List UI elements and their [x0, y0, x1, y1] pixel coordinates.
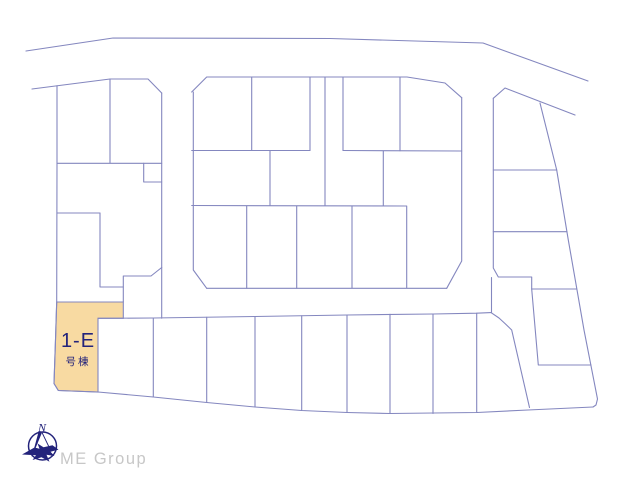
parcel-boundary-line [540, 103, 598, 407]
parcel-boundary-line [447, 98, 462, 289]
parcel-boundary-line [491, 313, 530, 408]
parcel-boundary-line [493, 88, 575, 115]
site-plan-map [0, 0, 640, 480]
parcel-boundary-line [343, 151, 462, 152]
lot-number-suffix: 号棟 [50, 354, 106, 369]
parcel-boundary-line [192, 77, 462, 98]
parcel-boundary-line [192, 206, 407, 288]
parcel-boundary-line [98, 313, 491, 319]
lot-number: 1-E [50, 331, 106, 351]
compass-needle-line [42, 433, 50, 449]
parcel-boundary-line [54, 384, 593, 414]
bird-logo-icon [22, 444, 59, 462]
parcel-boundary-line [493, 98, 531, 289]
parcel-boundary-line [144, 163, 162, 182]
highlighted-lot-label: 1-E 号棟 [50, 331, 106, 369]
company-name: ME Group [60, 450, 147, 469]
plot-map-page: 1-E 号棟 N ME Group [0, 0, 640, 480]
parcel-boundary-line [193, 92, 206, 288]
parcel-boundary-line [32, 79, 162, 93]
parcel-boundary-line [123, 268, 161, 303]
parcel-boundary-line [26, 38, 588, 81]
parcel-boundary-line [532, 289, 591, 365]
parcel-boundary-line [100, 213, 123, 287]
